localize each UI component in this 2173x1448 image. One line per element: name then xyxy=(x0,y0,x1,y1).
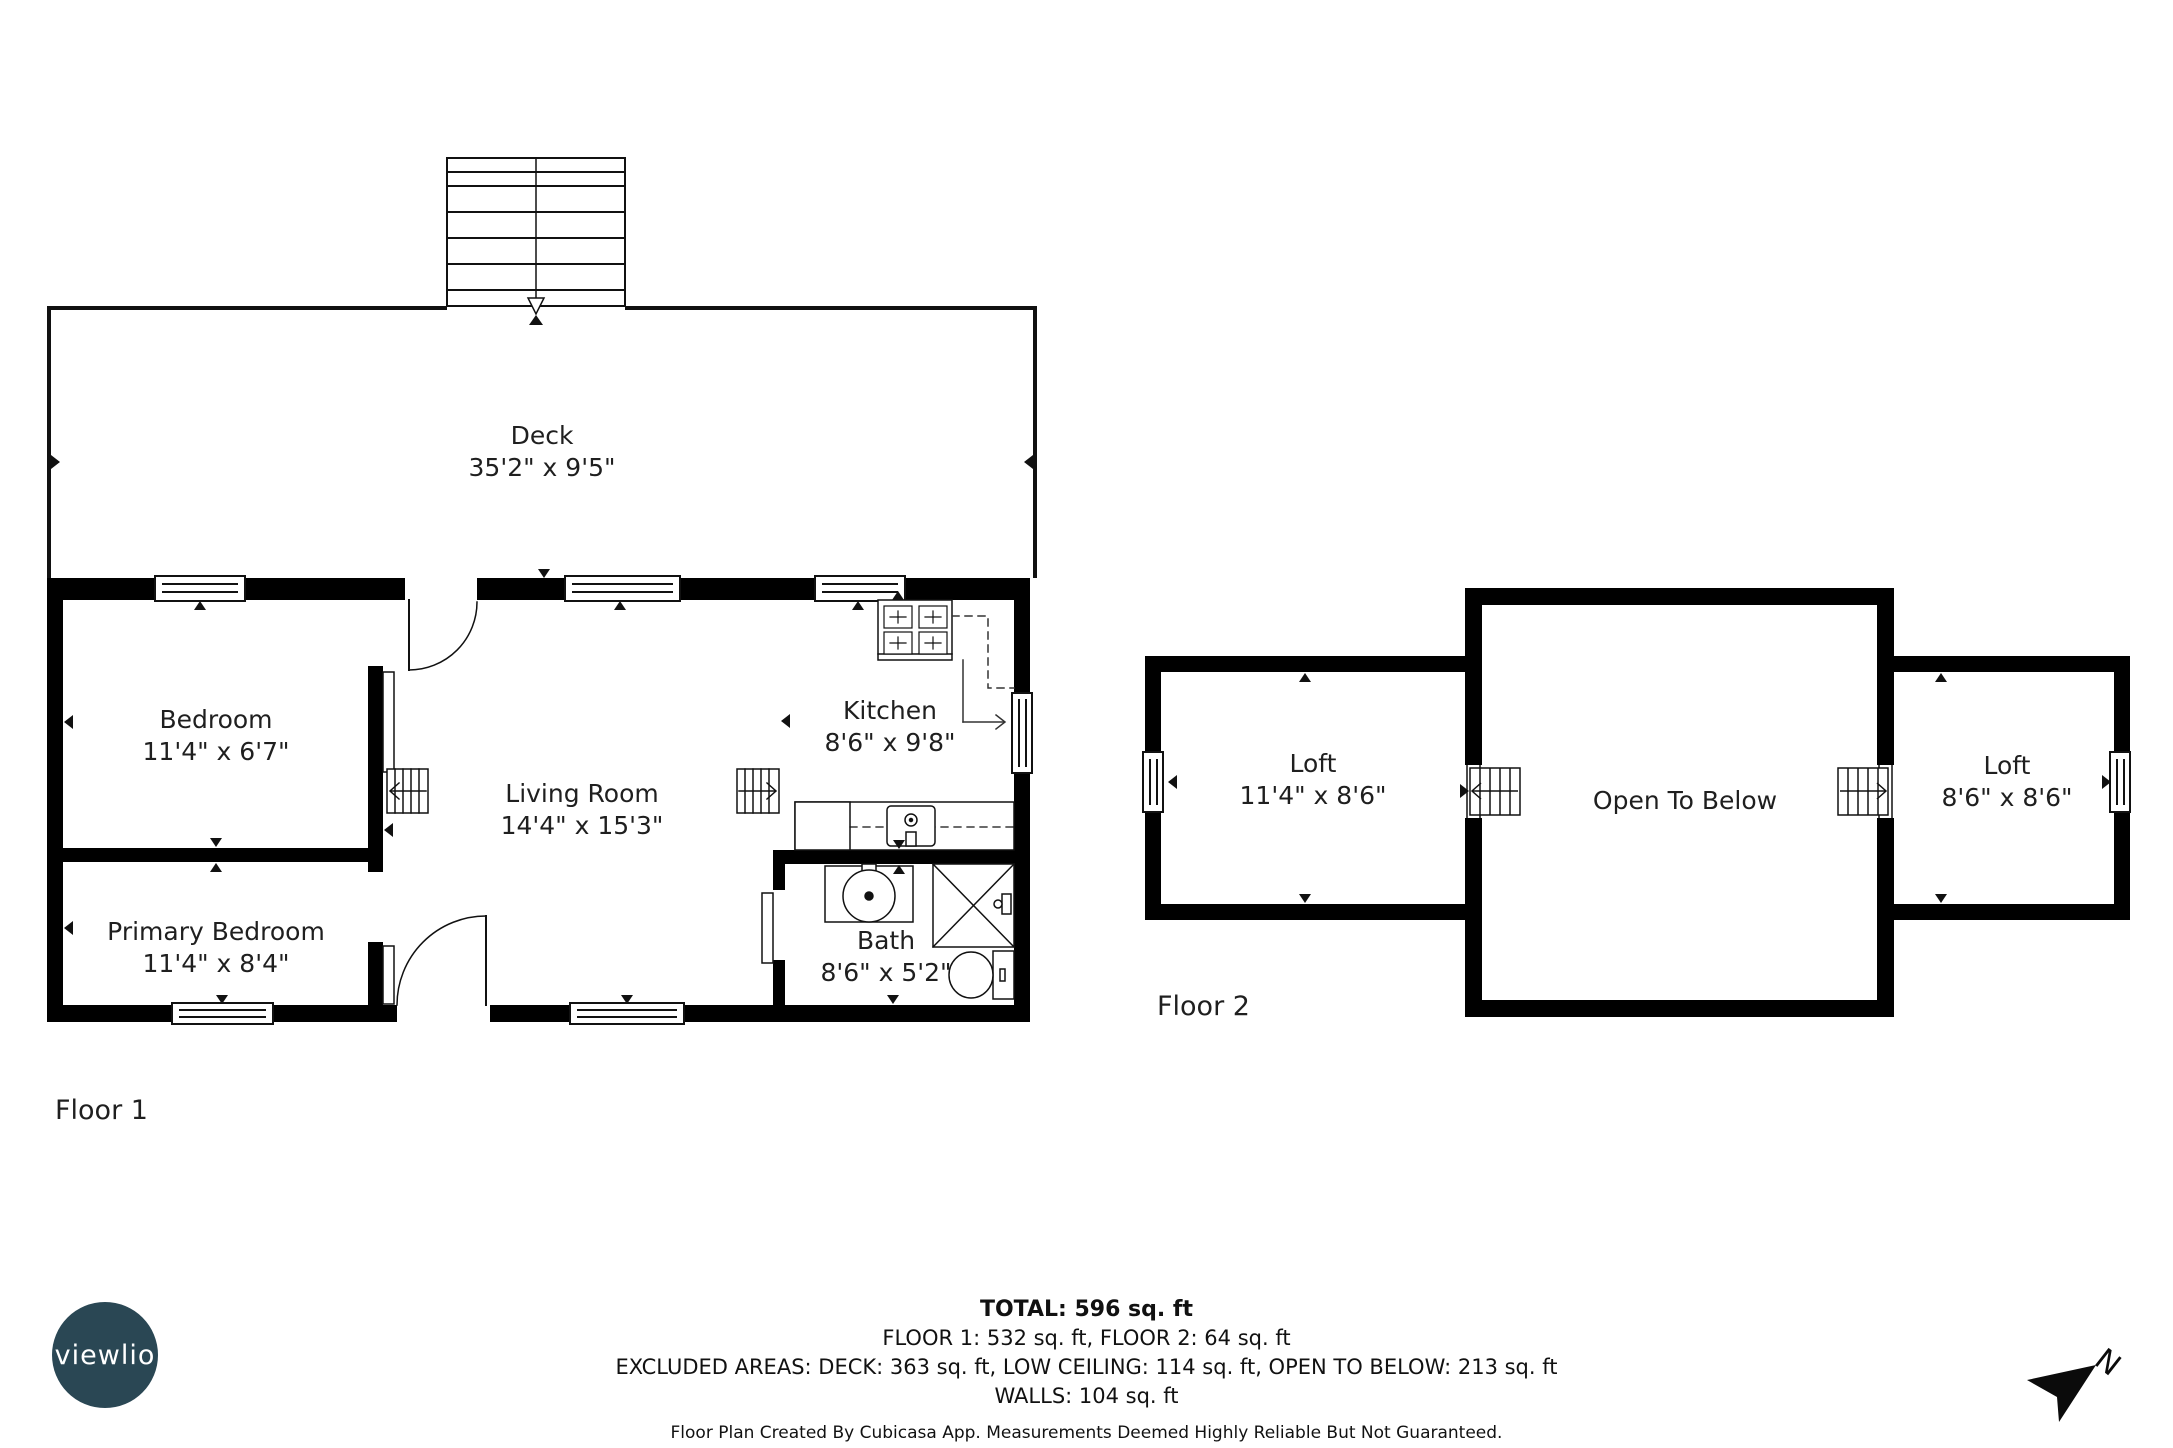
room-label-kitchen: Kitchen 8'6" x 9'8" xyxy=(824,695,955,759)
kitchen-counter-lines xyxy=(952,616,1014,729)
window xyxy=(2110,752,2130,812)
room-name: Deck xyxy=(469,420,616,452)
room-dimensions: 8'6" x 5'2" xyxy=(820,957,951,989)
room-dimensions: 14'4" x 15'3" xyxy=(501,810,664,842)
room-dimensions: 11'4" x 6'7" xyxy=(143,736,290,768)
room-label-bath: Bath 8'6" x 5'2" xyxy=(820,925,951,989)
primary-bedroom-door xyxy=(383,946,394,1004)
floor2-label: Floor 2 xyxy=(1157,991,1250,1022)
viewlio-logo: viewlio xyxy=(52,1302,158,1408)
window xyxy=(570,1003,684,1024)
window xyxy=(1143,752,1163,812)
room-name: Kitchen xyxy=(824,695,955,727)
exterior-stairs-icon xyxy=(447,158,625,325)
room-name: Open To Below xyxy=(1593,785,1777,817)
floor-plan-page: N Deck 35'2" x 9'5" Bedroom 11'4" x 6'7"… xyxy=(0,0,2173,1448)
marker-up-icon xyxy=(529,315,543,325)
room-name: Living Room xyxy=(501,778,664,810)
room-dimensions: 11'4" x 8'6" xyxy=(1240,780,1387,812)
room-label-loft-left: Loft 11'4" x 8'6" xyxy=(1240,748,1387,812)
room-name: Loft xyxy=(1240,748,1387,780)
floor-plan-drawing: N xyxy=(0,0,2173,1448)
room-label-loft-right: Loft 8'6" x 8'6" xyxy=(1941,750,2072,814)
bedroom-door xyxy=(383,672,394,772)
viewlio-logo-text: viewlio xyxy=(55,1340,156,1371)
room-label-living-room: Living Room 14'4" x 15'3" xyxy=(501,778,664,842)
stairs-icon-left xyxy=(387,769,428,813)
bath-door xyxy=(762,893,773,963)
room-name: Loft xyxy=(1941,750,2072,782)
total-area-line: TOTAL: 596 sq. ft xyxy=(0,1295,2173,1324)
floor1-plan xyxy=(47,158,1037,1025)
window xyxy=(565,576,680,601)
excluded-areas-line: EXCLUDED AREAS: DECK: 363 sq. ft, LOW CE… xyxy=(0,1353,2173,1382)
room-name: Bath xyxy=(820,925,951,957)
deck-door xyxy=(405,575,477,670)
window xyxy=(1012,693,1032,773)
floor-areas-line: FLOOR 1: 532 sq. ft, FLOOR 2: 64 sq. ft xyxy=(0,1324,2173,1353)
room-dimensions: 35'2" x 9'5" xyxy=(469,452,616,484)
kitchen-counter xyxy=(795,802,1014,850)
front-door xyxy=(397,916,490,1025)
area-summary: TOTAL: 596 sq. ft FLOOR 1: 532 sq. ft, F… xyxy=(0,1295,2173,1411)
stairs-icon-floor2-left xyxy=(1470,768,1520,815)
walls-area-line: WALLS: 104 sq. ft xyxy=(0,1382,2173,1411)
window xyxy=(815,576,905,601)
room-label-bedroom: Bedroom 11'4" x 6'7" xyxy=(143,704,290,768)
room-label-deck: Deck 35'2" x 9'5" xyxy=(469,420,616,484)
window xyxy=(172,1003,273,1024)
room-name: Primary Bedroom xyxy=(107,916,325,948)
stairs-icon-floor2-right xyxy=(1838,768,1888,815)
room-label-primary-bedroom: Primary Bedroom 11'4" x 8'4" xyxy=(107,916,325,980)
stairs-icon-right xyxy=(737,769,779,813)
window xyxy=(155,576,245,601)
fridge-icon xyxy=(795,802,850,850)
room-label-open-to-below: Open To Below xyxy=(1593,785,1777,817)
stove-icon xyxy=(878,600,952,660)
toilet-icon xyxy=(949,951,1014,999)
room-name: Bedroom xyxy=(143,704,290,736)
room-dimensions: 8'6" x 8'6" xyxy=(1941,782,2072,814)
disclaimer-text: Floor Plan Created By Cubicasa App. Meas… xyxy=(0,1423,2173,1443)
floor1-label: Floor 1 xyxy=(55,1095,148,1126)
room-dimensions: 8'6" x 9'8" xyxy=(824,727,955,759)
room-dimensions: 11'4" x 8'4" xyxy=(107,948,325,980)
